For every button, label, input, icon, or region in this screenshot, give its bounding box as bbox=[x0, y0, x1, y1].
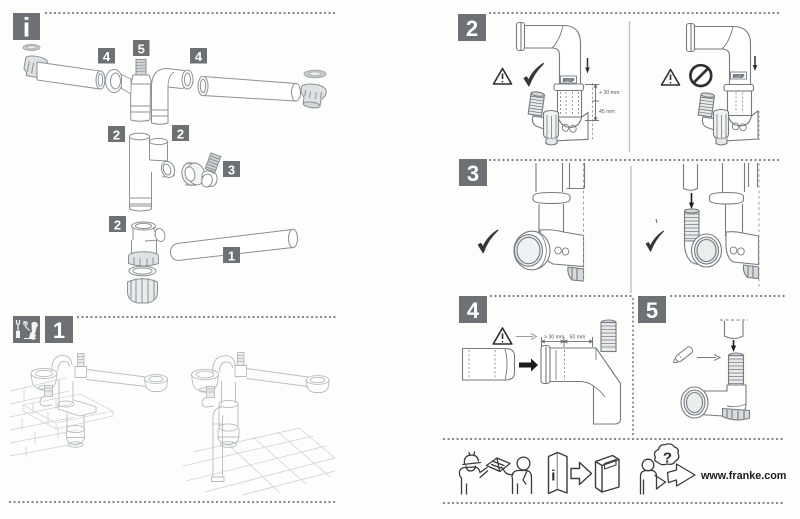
svg-text:50 mm: 50 mm bbox=[570, 335, 586, 341]
svg-text:2: 2 bbox=[114, 218, 121, 233]
svg-text:STOP: STOP bbox=[563, 78, 575, 83]
svg-text:3: 3 bbox=[228, 163, 235, 178]
svg-text:1: 1 bbox=[53, 318, 65, 343]
svg-text:2: 2 bbox=[466, 16, 478, 41]
svg-text:2: 2 bbox=[113, 128, 120, 143]
svg-text:STOP: STOP bbox=[733, 74, 745, 79]
svg-text:?: ? bbox=[663, 450, 672, 467]
svg-text:5: 5 bbox=[138, 42, 145, 57]
svg-text:1: 1 bbox=[228, 249, 235, 264]
svg-text:45 mm: 45 mm bbox=[599, 109, 615, 115]
svg-text:+ 30 mm: + 30 mm bbox=[599, 90, 619, 96]
svg-text:5: 5 bbox=[646, 298, 658, 323]
svg-text:i: i bbox=[23, 13, 31, 43]
svg-text:> 30 mm: > 30 mm bbox=[544, 335, 564, 341]
svg-text:4: 4 bbox=[103, 49, 111, 64]
svg-text:3: 3 bbox=[467, 161, 479, 186]
svg-text:4: 4 bbox=[195, 49, 203, 64]
svg-text:2: 2 bbox=[177, 127, 184, 142]
svg-text:www.franke.com: www.franke.com bbox=[700, 470, 786, 482]
svg-text:i: i bbox=[551, 468, 555, 485]
svg-text:4: 4 bbox=[467, 298, 480, 323]
